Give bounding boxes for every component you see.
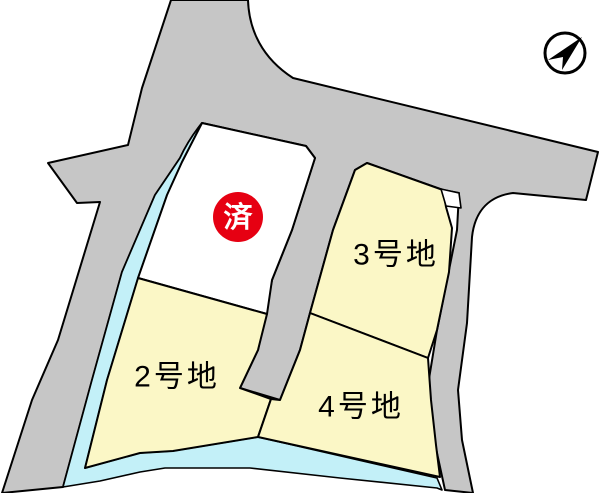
north-arrow-icon <box>545 33 585 73</box>
lot-4-label: 4号地 <box>318 391 404 424</box>
lot-map-canvas: 済 2号地 3号地 4号地 <box>0 0 600 493</box>
lot-3-label: 3号地 <box>353 239 439 272</box>
sold-badge-label: 済 <box>223 201 253 234</box>
lot-map: 済 2号地 3号地 4号地 <box>0 0 600 493</box>
lot-2-label: 2号地 <box>134 361 220 394</box>
